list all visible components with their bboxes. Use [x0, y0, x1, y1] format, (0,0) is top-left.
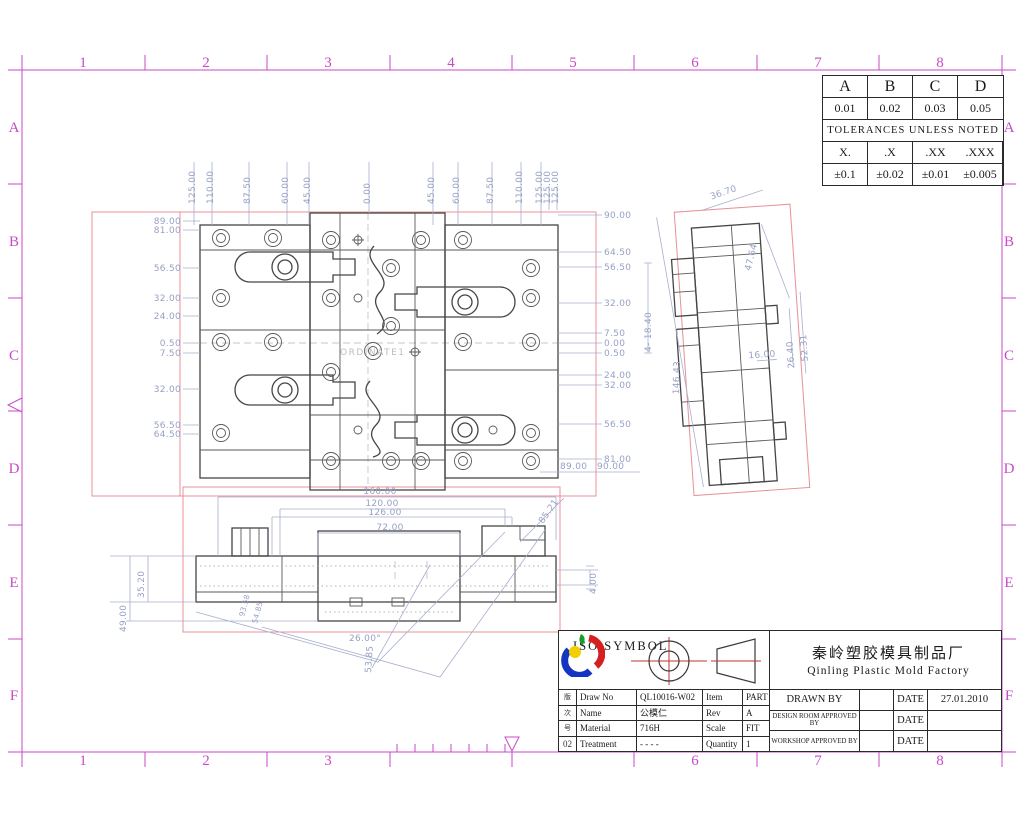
dim-label: 16.00 [748, 350, 776, 362]
date-blank [928, 731, 1001, 752]
zone-row: D [1004, 461, 1015, 477]
dim-label: 93.58 [237, 593, 252, 617]
center-mark-left-icon [8, 398, 22, 412]
title-block: ISO SYMBOL 秦岭塑胶模具制品厂 Qinling Plastic Mol… [558, 630, 1002, 752]
zone-row: D [9, 461, 20, 477]
dim-label: 0.00 [363, 183, 373, 204]
center-mark-bottom-icon [505, 737, 519, 751]
field-label: Item [703, 690, 743, 706]
dim-label: 0.50 [160, 339, 181, 349]
dim-label: 89.00 [560, 462, 587, 472]
dim-label: 56.50 [604, 263, 631, 273]
dim-label: 47.64 [744, 243, 760, 272]
tol-precision-header: .X [868, 142, 913, 164]
tol-note: TOLERANCES UNLESS NOTED [823, 120, 1003, 142]
zone-row: B [9, 234, 19, 250]
field-value: A [743, 706, 769, 722]
dim-label: 56.50 [154, 264, 181, 274]
dim-label: 85.21 [537, 498, 561, 526]
dim-label: 64.50 [604, 248, 631, 258]
signoff-blank [860, 731, 894, 752]
tol-value: 0.05 [958, 98, 1003, 120]
tol-precision-value: ±0.1 [823, 164, 868, 185]
zone-col: 8 [936, 55, 944, 71]
dim-label: 26.40 [786, 341, 798, 369]
tol-header: C [913, 76, 958, 98]
tolerance-table: A B C D 0.01 0.02 0.03 0.05 TOLERANCES U… [822, 75, 1004, 186]
tol-precision-header: .XXX [958, 142, 1003, 164]
zone-row: A [9, 120, 20, 136]
dim-label: 60.00 [452, 177, 462, 204]
dim-label: 60.00 [281, 177, 291, 204]
field-label: Quantity [703, 737, 743, 753]
dim-label: 7.50 [604, 329, 625, 339]
tol-header: B [868, 76, 913, 98]
field-value: 1 [743, 737, 769, 753]
dim-label: 72.00 [376, 523, 403, 533]
tol-value: 0.03 [913, 98, 958, 120]
dim-label: 90.00 [604, 211, 631, 221]
signoff-blank [860, 690, 894, 711]
company-logo-icon [559, 631, 605, 677]
zone-row: F [1005, 688, 1013, 704]
dim-label: 32.00 [154, 385, 181, 395]
signoff-label: WORKSHOP APPROVED BY [770, 731, 860, 752]
dim-label: 52.31 [799, 334, 811, 362]
dim-label: 87.50 [486, 177, 496, 204]
signoff-label: DESIGN ROOM APPROVED BY [770, 711, 860, 732]
tol-header: A [823, 76, 868, 98]
dim-label: 126.00 [368, 508, 401, 518]
dim-label: 45.00 [427, 177, 437, 204]
dim-label: 7.50 [160, 349, 181, 359]
dim-label: 49.00 [119, 605, 129, 632]
zone-col: 2 [202, 55, 210, 71]
company-name-en: Qinling Plastic Mold Factory [776, 665, 1001, 677]
field-value: QL10016-W02 [637, 690, 703, 706]
dim-label: 56.50 [604, 420, 631, 430]
zone-col: 1 [79, 55, 87, 71]
date-blank [928, 711, 1001, 732]
tol-precision-header: X. [823, 142, 868, 164]
signoff-blank [860, 711, 894, 732]
zone-row: C [9, 348, 19, 364]
signoff-label: DRAWN BY [770, 690, 860, 711]
dim-label: 32.00 [604, 299, 631, 309]
dim-label: 0.50 [604, 349, 625, 359]
dim-label: 26.00° [349, 634, 381, 644]
rev-column: 版 次 号 02 [559, 690, 577, 752]
zone-row: F [10, 688, 18, 704]
drawing-sheet: 1 2 3 4 5 6 7 8 1 2 3 6 7 8 A B C D E F … [0, 0, 1024, 819]
zone-col: 2 [202, 753, 210, 769]
field-label: Name [577, 706, 637, 722]
rev-char: 号 [559, 721, 576, 737]
dim-label: 160.00 [363, 487, 396, 497]
dim-label: 64.50 [154, 430, 181, 440]
zone-col: 6 [691, 55, 699, 71]
field-label: Scale [703, 721, 743, 737]
dim-label: 53.85 [364, 645, 376, 673]
dim-label: 125.00 [188, 171, 198, 204]
dim-label: 110.00 [515, 171, 525, 204]
zone-row: B [1004, 234, 1014, 250]
zone-row: A [1004, 120, 1015, 136]
field-value: PART [743, 690, 769, 706]
dim-label: 24.00 [604, 371, 631, 381]
date-label: DATE [894, 711, 928, 732]
main-view: ORDINATE1 [200, 213, 558, 490]
company-name-cn: 秦岭塑胶模具制品厂 [776, 643, 1001, 666]
tol-precision-value: ±0.02 [868, 164, 913, 185]
tol-precision-header: .XX [913, 142, 958, 164]
signoff-table: DRAWN BY DATE 27.01.2010 DESIGN ROOM APP… [770, 690, 1001, 752]
zone-col: 6 [691, 753, 699, 769]
dim-label: 35.20 [137, 571, 147, 598]
tol-precision-value: ±0.01 [913, 164, 958, 185]
dim-label: 32.00 [604, 381, 631, 391]
zone-row: C [1004, 348, 1014, 364]
zone-col: 5 [569, 55, 577, 71]
dim-label: 146.43 [672, 361, 683, 395]
tol-header: D [958, 76, 1003, 98]
zone-col: 7 [814, 55, 822, 71]
dim-label: 24.00 [154, 312, 181, 322]
company-cell: 秦岭塑胶模具制品厂 Qinling Plastic Mold Factory [770, 631, 1001, 689]
dim-label: 4.00 [589, 573, 599, 594]
field-label: Draw No [577, 690, 637, 706]
rev-number: 02 [559, 737, 576, 753]
ordinate-label: ORDINATE1 [340, 348, 406, 358]
dim-label: 4- 18.40 [644, 312, 654, 352]
zone-col: 3 [324, 753, 332, 769]
field-value: 公模仁 [637, 706, 703, 722]
tol-value: 0.01 [823, 98, 868, 120]
spec-table: 版 次 号 02 Draw No QL10016-W02 Item PART N… [559, 690, 770, 752]
rev-char: 次 [559, 706, 576, 722]
zone-row: E [1004, 575, 1013, 591]
zone-col: 3 [324, 55, 332, 71]
dim-label: 125.00 [551, 171, 561, 204]
zone-col: 1 [79, 753, 87, 769]
main-view-dimensions: 125.00 110.00 87.50 60.00 45.00 0.00 45.… [154, 162, 654, 472]
date-label: DATE [894, 731, 928, 752]
field-label: Rev [703, 706, 743, 722]
dim-label: 110.00 [206, 171, 216, 204]
field-label: Material [577, 721, 637, 737]
date-label: DATE [894, 690, 928, 711]
dim-label: 0.00 [604, 339, 625, 349]
zone-col: 7 [814, 753, 822, 769]
dim-label: 81.00 [154, 226, 181, 236]
tol-value: 0.02 [868, 98, 913, 120]
rev-char: 版 [559, 690, 576, 706]
field-label: Treatment [577, 737, 637, 753]
field-value: 716H [637, 721, 703, 737]
zone-col: 4 [447, 55, 455, 71]
zone-row: E [9, 575, 18, 591]
dim-label: 90.00 [597, 462, 624, 472]
zone-col: 8 [936, 753, 944, 769]
dim-label: 45.00 [303, 177, 313, 204]
tol-precision-value: ±0.005 [958, 164, 1003, 185]
dim-label: 87.50 [243, 177, 253, 204]
field-value: FIT [743, 721, 769, 737]
drawn-date: 27.01.2010 [928, 690, 1001, 711]
dim-label: 32.00 [154, 294, 181, 304]
field-value: - - - - [637, 737, 703, 753]
side-view: 36.70 47.64 26.40 52.31 146.43 16.00 [655, 180, 820, 497]
